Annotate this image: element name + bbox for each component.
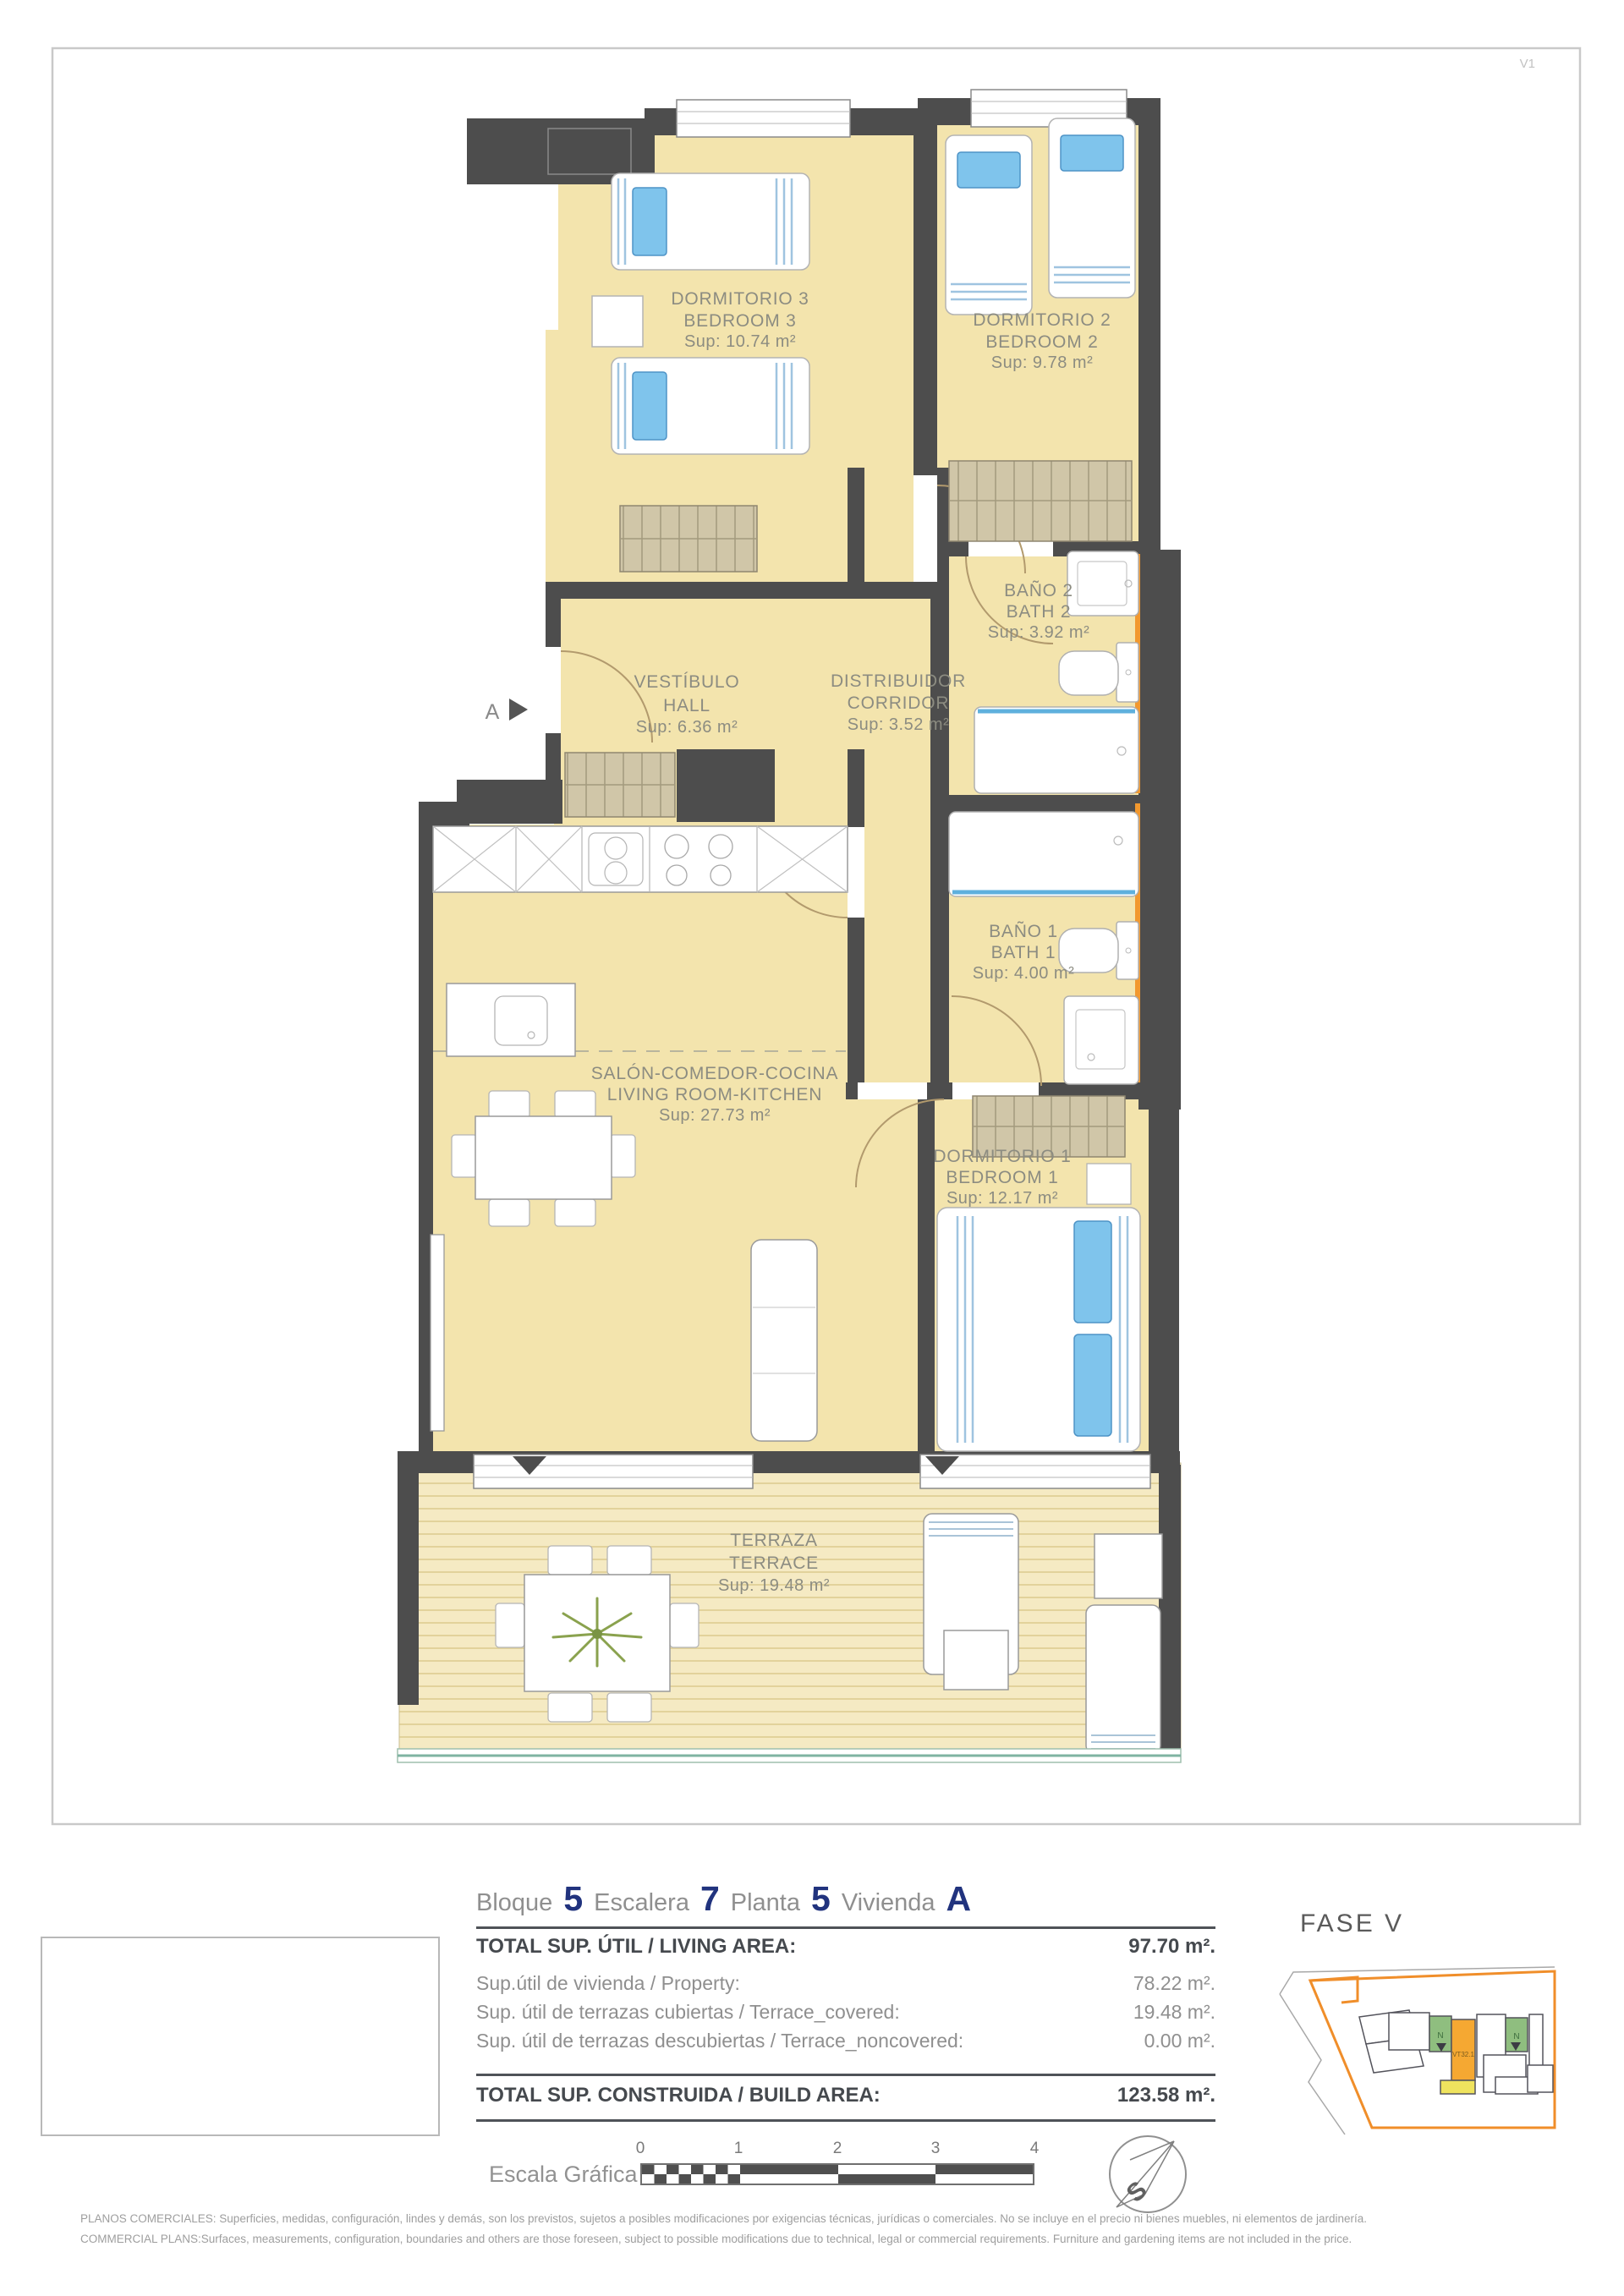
wardrobe-bedroom3 — [620, 506, 757, 572]
plan-sheet: V1 — [0, 0, 1624, 2296]
washbasin-bath2 — [1067, 551, 1138, 616]
window-living-terrace — [474, 1455, 753, 1488]
disclaimer-en: COMMERCIAL PLANS:Surfaces, measurements,… — [80, 2233, 1352, 2245]
bed-double — [937, 1208, 1140, 1451]
disclaimer-es: PLANOS COMERCIALES: Superficies, medidas… — [80, 2212, 1367, 2225]
divider-bottom — [476, 2119, 1215, 2122]
svg-text:BATH 1: BATH 1 — [991, 943, 1056, 962]
scale-bar — [640, 2163, 1034, 2185]
toilet-bath2 — [1059, 643, 1138, 702]
bloque-label: Bloque — [476, 1889, 552, 1917]
room-label-bedroom2: DORMITORIO 2 BEDROOM 2 Sup: 9.78 m² — [973, 310, 1111, 372]
tv-bench — [431, 1235, 444, 1431]
north-label-2: N — [1513, 2032, 1519, 2041]
area-row-value: 0.00 m². — [1144, 2030, 1215, 2052]
vivienda-label: Vivienda — [842, 1889, 935, 1917]
svg-text:BATH 2: BATH 2 — [1007, 602, 1072, 622]
phase-label: FASE V — [1300, 1910, 1404, 1938]
scale-tick: 0 — [636, 2140, 645, 2158]
key-plan: N N VT32.1 — [1269, 1943, 1590, 2155]
area-row: Sup. útil de terrazas cubiertas / Terrac… — [476, 2001, 1215, 2024]
vivienda-value: A — [946, 1879, 972, 1919]
svg-text:Sup: 10.74 m²: Sup: 10.74 m² — [684, 332, 796, 351]
bed-single-3 — [946, 135, 1032, 315]
scale-tick: 3 — [931, 2140, 941, 2158]
room-label-bedroom3: DORMITORIO 3 BEDROOM 3 Sup: 10.74 m² — [671, 289, 809, 351]
planta-value: 5 — [811, 1879, 831, 1919]
terrace-side-table-1 — [1095, 1534, 1162, 1598]
total-living-row: TOTAL SUP. ÚTIL / LIVING AREA: 97.70 m². — [476, 1935, 1215, 1959]
svg-text:DISTRIBUIDOR: DISTRIBUIDOR — [831, 671, 966, 691]
bed-single-4 — [1049, 118, 1135, 298]
area-row-label: Sup. útil de terrazas descubiertas / Ter… — [476, 2030, 963, 2052]
kitchen-island — [447, 984, 575, 1056]
bathtub-bath2 — [974, 707, 1138, 793]
scale-tick: 4 — [1030, 2140, 1040, 2158]
svg-text:Sup: 3.52 m²: Sup: 3.52 m² — [848, 715, 950, 734]
room-label-bedroom1: DORMITORIO 1 BEDROOM 1 Sup: 12.17 m² — [933, 1147, 1071, 1208]
svg-text:DORMITORIO 2: DORMITORIO 2 — [973, 310, 1111, 330]
svg-text:SALÓN-COMEDOR-COCINA: SALÓN-COMEDOR-COCINA — [591, 1064, 839, 1083]
logo-box — [41, 1937, 440, 2136]
svg-text:BEDROOM 1: BEDROOM 1 — [946, 1168, 1058, 1187]
planta-label: Planta — [731, 1889, 800, 1917]
divider-top — [476, 1926, 1215, 1929]
scale-label: Escala Gráfica — [489, 2162, 638, 2188]
kitchen-sink — [589, 833, 643, 885]
svg-text:BAÑO 1: BAÑO 1 — [989, 921, 1058, 941]
north-label-1: N — [1437, 2031, 1443, 2041]
compass-icon: S — [1101, 2128, 1194, 2221]
svg-text:BEDROOM 3: BEDROOM 3 — [683, 311, 796, 331]
total-build-row: TOTAL SUP. CONSTRUIDA / BUILD AREA: 123.… — [476, 2084, 1215, 2107]
total-build-value: 123.58 m². — [1117, 2084, 1215, 2107]
window-bedroom3 — [677, 100, 850, 137]
wardrobe-bedroom2 — [949, 461, 1132, 541]
scale-tick: 2 — [833, 2140, 842, 2158]
room-label-terrace: TERRAZA TERRACE Sup: 19.48 m² — [718, 1531, 830, 1595]
svg-text:BAÑO 2: BAÑO 2 — [1004, 580, 1073, 600]
area-row: Sup.útil de vivienda / Property: 78.22 m… — [476, 1972, 1215, 1995]
svg-text:VESTÍBULO: VESTÍBULO — [634, 672, 739, 692]
shaft-inner — [548, 129, 631, 174]
svg-text:Sup: 3.92 m²: Sup: 3.92 m² — [988, 623, 1090, 642]
svg-text:Sup: 6.36 m²: Sup: 6.36 m² — [636, 718, 738, 737]
floor-plan: V1 — [0, 0, 1624, 1827]
wardrobe-hall — [565, 753, 675, 817]
area-row-value: 19.48 m². — [1133, 2001, 1215, 2024]
area-row-label: Sup. útil de terrazas cubiertas / Terrac… — [476, 2001, 900, 2024]
highlighted-unit — [1451, 2019, 1475, 2080]
bloque-value: 5 — [563, 1879, 583, 1919]
bed-single-2 — [612, 358, 809, 454]
nightstand-bedroom1 — [1087, 1164, 1131, 1204]
svg-text:HALL: HALL — [663, 696, 710, 715]
total-build-label: TOTAL SUP. CONSTRUIDA / BUILD AREA: — [476, 2084, 881, 2107]
svg-text:DORMITORIO 3: DORMITORIO 3 — [671, 289, 809, 309]
svg-text:CORRIDOR: CORRIDOR — [848, 693, 950, 713]
total-living-value: 97.70 m². — [1128, 1935, 1215, 1959]
sheet-code: V1 — [1520, 57, 1535, 71]
bed-single-1 — [612, 173, 809, 270]
scale-tick: 1 — [734, 2140, 743, 2158]
nightstand-bedroom3 — [592, 296, 643, 347]
terrace-side-table-2 — [944, 1630, 1008, 1690]
bathtub-bath1 — [949, 812, 1138, 896]
svg-text:LIVING ROOM-KITCHEN: LIVING ROOM-KITCHEN — [607, 1085, 822, 1104]
terrace-balustrade — [398, 1749, 1181, 1762]
washbasin-bath1 — [1064, 996, 1138, 1084]
escalera-label: Escalera — [594, 1889, 689, 1917]
sofa — [751, 1240, 817, 1441]
svg-text:Sup: 27.73 m²: Sup: 27.73 m² — [659, 1106, 771, 1125]
svg-text:Sup: 19.48 m²: Sup: 19.48 m² — [718, 1576, 830, 1595]
unit-heading: Bloque 5 Escalera 7 Planta 5 Vivienda A — [476, 1879, 971, 1919]
svg-text:DORMITORIO 1: DORMITORIO 1 — [933, 1147, 1071, 1166]
area-row-label: Sup.útil de vivienda / Property: — [476, 1972, 740, 1995]
svg-text:TERRAZA: TERRAZA — [730, 1531, 818, 1550]
graphic-scale: 0 1 2 3 4 — [640, 2140, 1034, 2190]
svg-text:Sup: 9.78 m²: Sup: 9.78 m² — [991, 353, 1094, 372]
total-living-label: TOTAL SUP. ÚTIL / LIVING AREA: — [476, 1935, 796, 1959]
unit-code: VT32.1 — [1452, 2051, 1474, 2058]
divider-middle — [476, 2074, 1215, 2076]
area-row: Sup. útil de terrazas descubiertas / Ter… — [476, 2030, 1215, 2052]
svg-text:A: A — [486, 700, 500, 724]
sun-lounger-2 — [1086, 1605, 1160, 1754]
svg-text:Sup: 12.17 m²: Sup: 12.17 m² — [946, 1189, 1058, 1208]
area-row-value: 78.22 m². — [1133, 1972, 1215, 1995]
svg-text:TERRACE: TERRACE — [729, 1553, 819, 1573]
svg-text:Sup: 4.00 m²: Sup: 4.00 m² — [973, 964, 1075, 983]
room-label-corridor: DISTRIBUIDOR CORRIDOR Sup: 3.52 m² — [831, 671, 966, 734]
svg-text:BEDROOM 2: BEDROOM 2 — [985, 332, 1098, 352]
escalera-value: 7 — [700, 1879, 720, 1919]
